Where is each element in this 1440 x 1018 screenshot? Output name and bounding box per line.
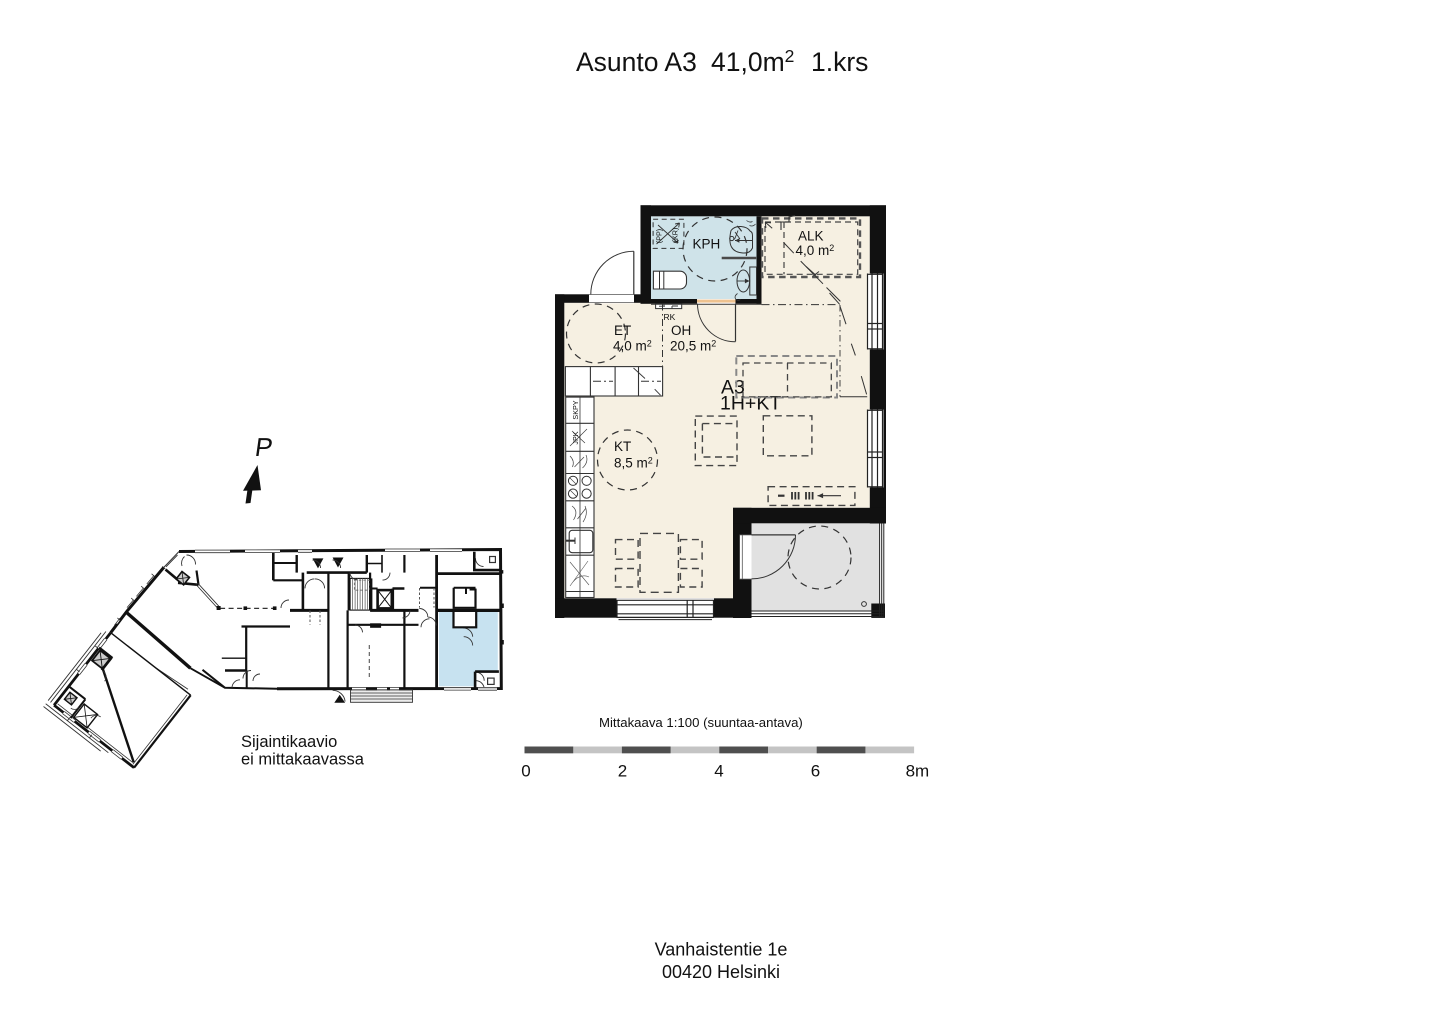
svg-text:Asunto A3: Asunto A3 xyxy=(576,47,697,77)
svg-text:4,0 m2: 4,0 m2 xyxy=(613,339,652,354)
svg-text:1.krs: 1.krs xyxy=(811,47,868,77)
svg-text:Sijaintikaavio: Sijaintikaavio xyxy=(241,733,337,751)
svg-text:4,0 m2: 4,0 m2 xyxy=(796,243,835,258)
svg-text:RK: RK xyxy=(664,312,676,322)
svg-text:JPK: JPK xyxy=(571,431,580,444)
svg-text:Vanhaistentie 1e: Vanhaistentie 1e xyxy=(655,940,788,960)
svg-text:20,5 m2: 20,5 m2 xyxy=(670,339,716,354)
svg-text:(KR): (KR) xyxy=(671,228,680,243)
svg-text:(PP): (PP) xyxy=(655,229,664,243)
svg-text:KPH: KPH xyxy=(693,237,721,252)
svg-text:SKPY: SKPY xyxy=(571,400,580,419)
svg-text:Mittakaava 1:100 (suuntaa-anta: Mittakaava 1:100 (suuntaa-antava) xyxy=(599,715,803,730)
svg-text:1H+KT: 1H+KT xyxy=(720,393,781,415)
svg-text:ALK: ALK xyxy=(798,229,824,244)
svg-text:0: 0 xyxy=(521,761,530,780)
svg-text:ei mittakaavassa: ei mittakaavassa xyxy=(241,751,365,769)
svg-text:8,5 m2: 8,5 m2 xyxy=(614,456,653,471)
svg-text:8m: 8m xyxy=(906,761,930,780)
svg-text:41,0m2: 41,0m2 xyxy=(711,46,794,77)
svg-text:6: 6 xyxy=(811,761,820,780)
svg-text:KT: KT xyxy=(614,439,631,454)
svg-text:OH: OH xyxy=(671,323,691,338)
svg-text:00420 Helsinki: 00420 Helsinki xyxy=(662,962,780,982)
svg-text:ET: ET xyxy=(614,323,631,338)
svg-text:2: 2 xyxy=(618,761,627,780)
svg-text:4: 4 xyxy=(714,761,723,780)
